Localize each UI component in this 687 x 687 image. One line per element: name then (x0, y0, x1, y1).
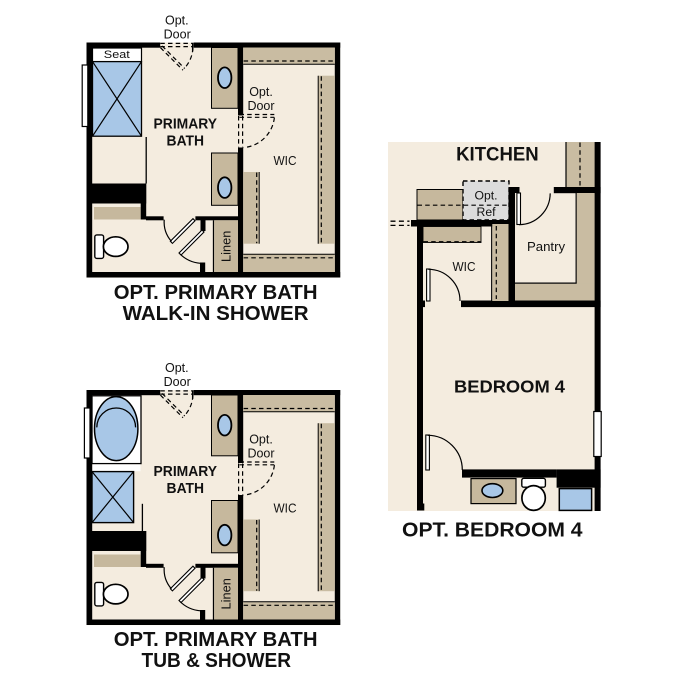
svg-text:Opt.: Opt. (249, 85, 273, 99)
svg-text:Door: Door (164, 27, 191, 41)
svg-text:PRIMARY: PRIMARY (154, 463, 218, 480)
svg-text:WIC: WIC (274, 501, 297, 516)
svg-text:PRIMARY: PRIMARY (154, 115, 218, 132)
svg-text:Door: Door (164, 375, 191, 389)
svg-text:KITCHEN: KITCHEN (456, 143, 539, 165)
svg-text:WIC: WIC (274, 153, 297, 168)
svg-text:Linen: Linen (219, 578, 234, 609)
svg-text:Pantry: Pantry (527, 239, 566, 254)
svg-text:Opt.: Opt. (249, 433, 273, 447)
svg-text:WIC: WIC (453, 259, 476, 274)
svg-text:BEDROOM 4: BEDROOM 4 (454, 377, 565, 397)
svg-text:Seat: Seat (104, 49, 131, 61)
svg-text:Ref: Ref (477, 205, 497, 219)
svg-text:WALK-IN SHOWER: WALK-IN SHOWER (123, 303, 309, 325)
svg-text:Opt.: Opt. (474, 189, 497, 203)
svg-text:Door: Door (247, 99, 274, 113)
svg-text:TUB & SHOWER: TUB & SHOWER (142, 650, 292, 672)
svg-text:Linen: Linen (219, 231, 234, 262)
svg-text:Door: Door (247, 447, 274, 461)
svg-text:Opt.: Opt. (165, 13, 189, 27)
svg-text:OPT. PRIMARY BATH: OPT. PRIMARY BATH (114, 282, 318, 304)
svg-text:Opt.: Opt. (165, 361, 189, 375)
svg-text:OPT. PRIMARY BATH: OPT. PRIMARY BATH (114, 629, 318, 651)
svg-text:BATH: BATH (167, 133, 205, 150)
svg-text:OPT. BEDROOM 4: OPT. BEDROOM 4 (402, 519, 583, 541)
svg-text:BATH: BATH (167, 480, 205, 497)
